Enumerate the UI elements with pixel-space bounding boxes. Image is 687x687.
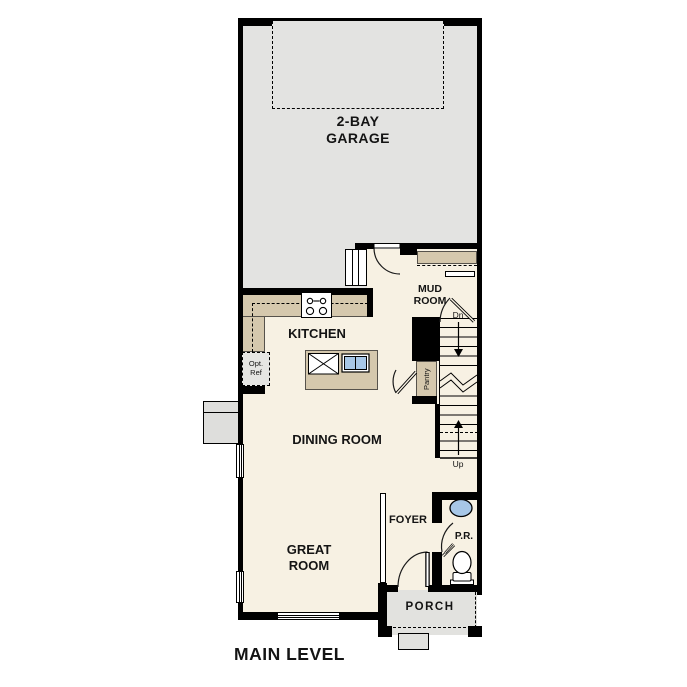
stairs-up-arrow <box>454 420 463 455</box>
stove-burners-icon <box>306 298 326 314</box>
pantry-door <box>393 370 416 393</box>
bathroom-sink-icon <box>450 500 472 517</box>
toilet-icon <box>451 552 474 585</box>
plan-linework <box>0 0 687 687</box>
dishwasher-icon <box>309 354 339 375</box>
kitchen-sink-icon <box>342 354 369 372</box>
stair-break-line <box>440 373 477 392</box>
front-door <box>398 552 428 587</box>
garage-entry-door <box>374 244 400 275</box>
floor-plan: 2-BAY GARAGE MUD ROOM KITCHEN DINING ROO… <box>0 0 687 687</box>
